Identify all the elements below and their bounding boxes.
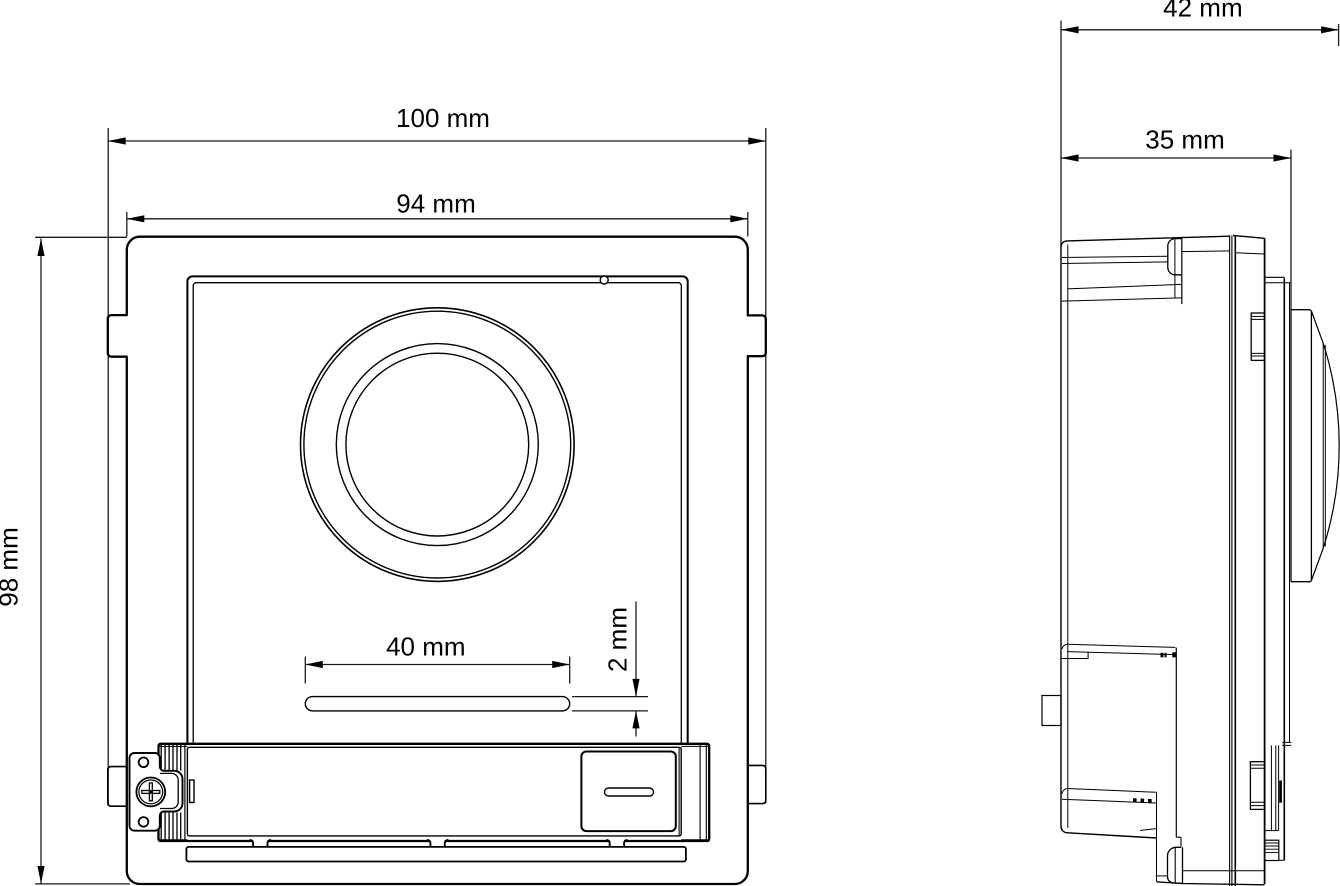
svg-text:40 mm: 40 mm (386, 632, 465, 662)
svg-text:100 mm: 100 mm (396, 103, 490, 133)
svg-text:35 mm: 35 mm (1145, 124, 1224, 154)
svg-text:2 mm: 2 mm (603, 607, 633, 672)
svg-text:94 mm: 94 mm (396, 188, 475, 218)
svg-text:98 mm: 98 mm (0, 527, 24, 606)
svg-text:42 mm: 42 mm (1163, 0, 1242, 22)
